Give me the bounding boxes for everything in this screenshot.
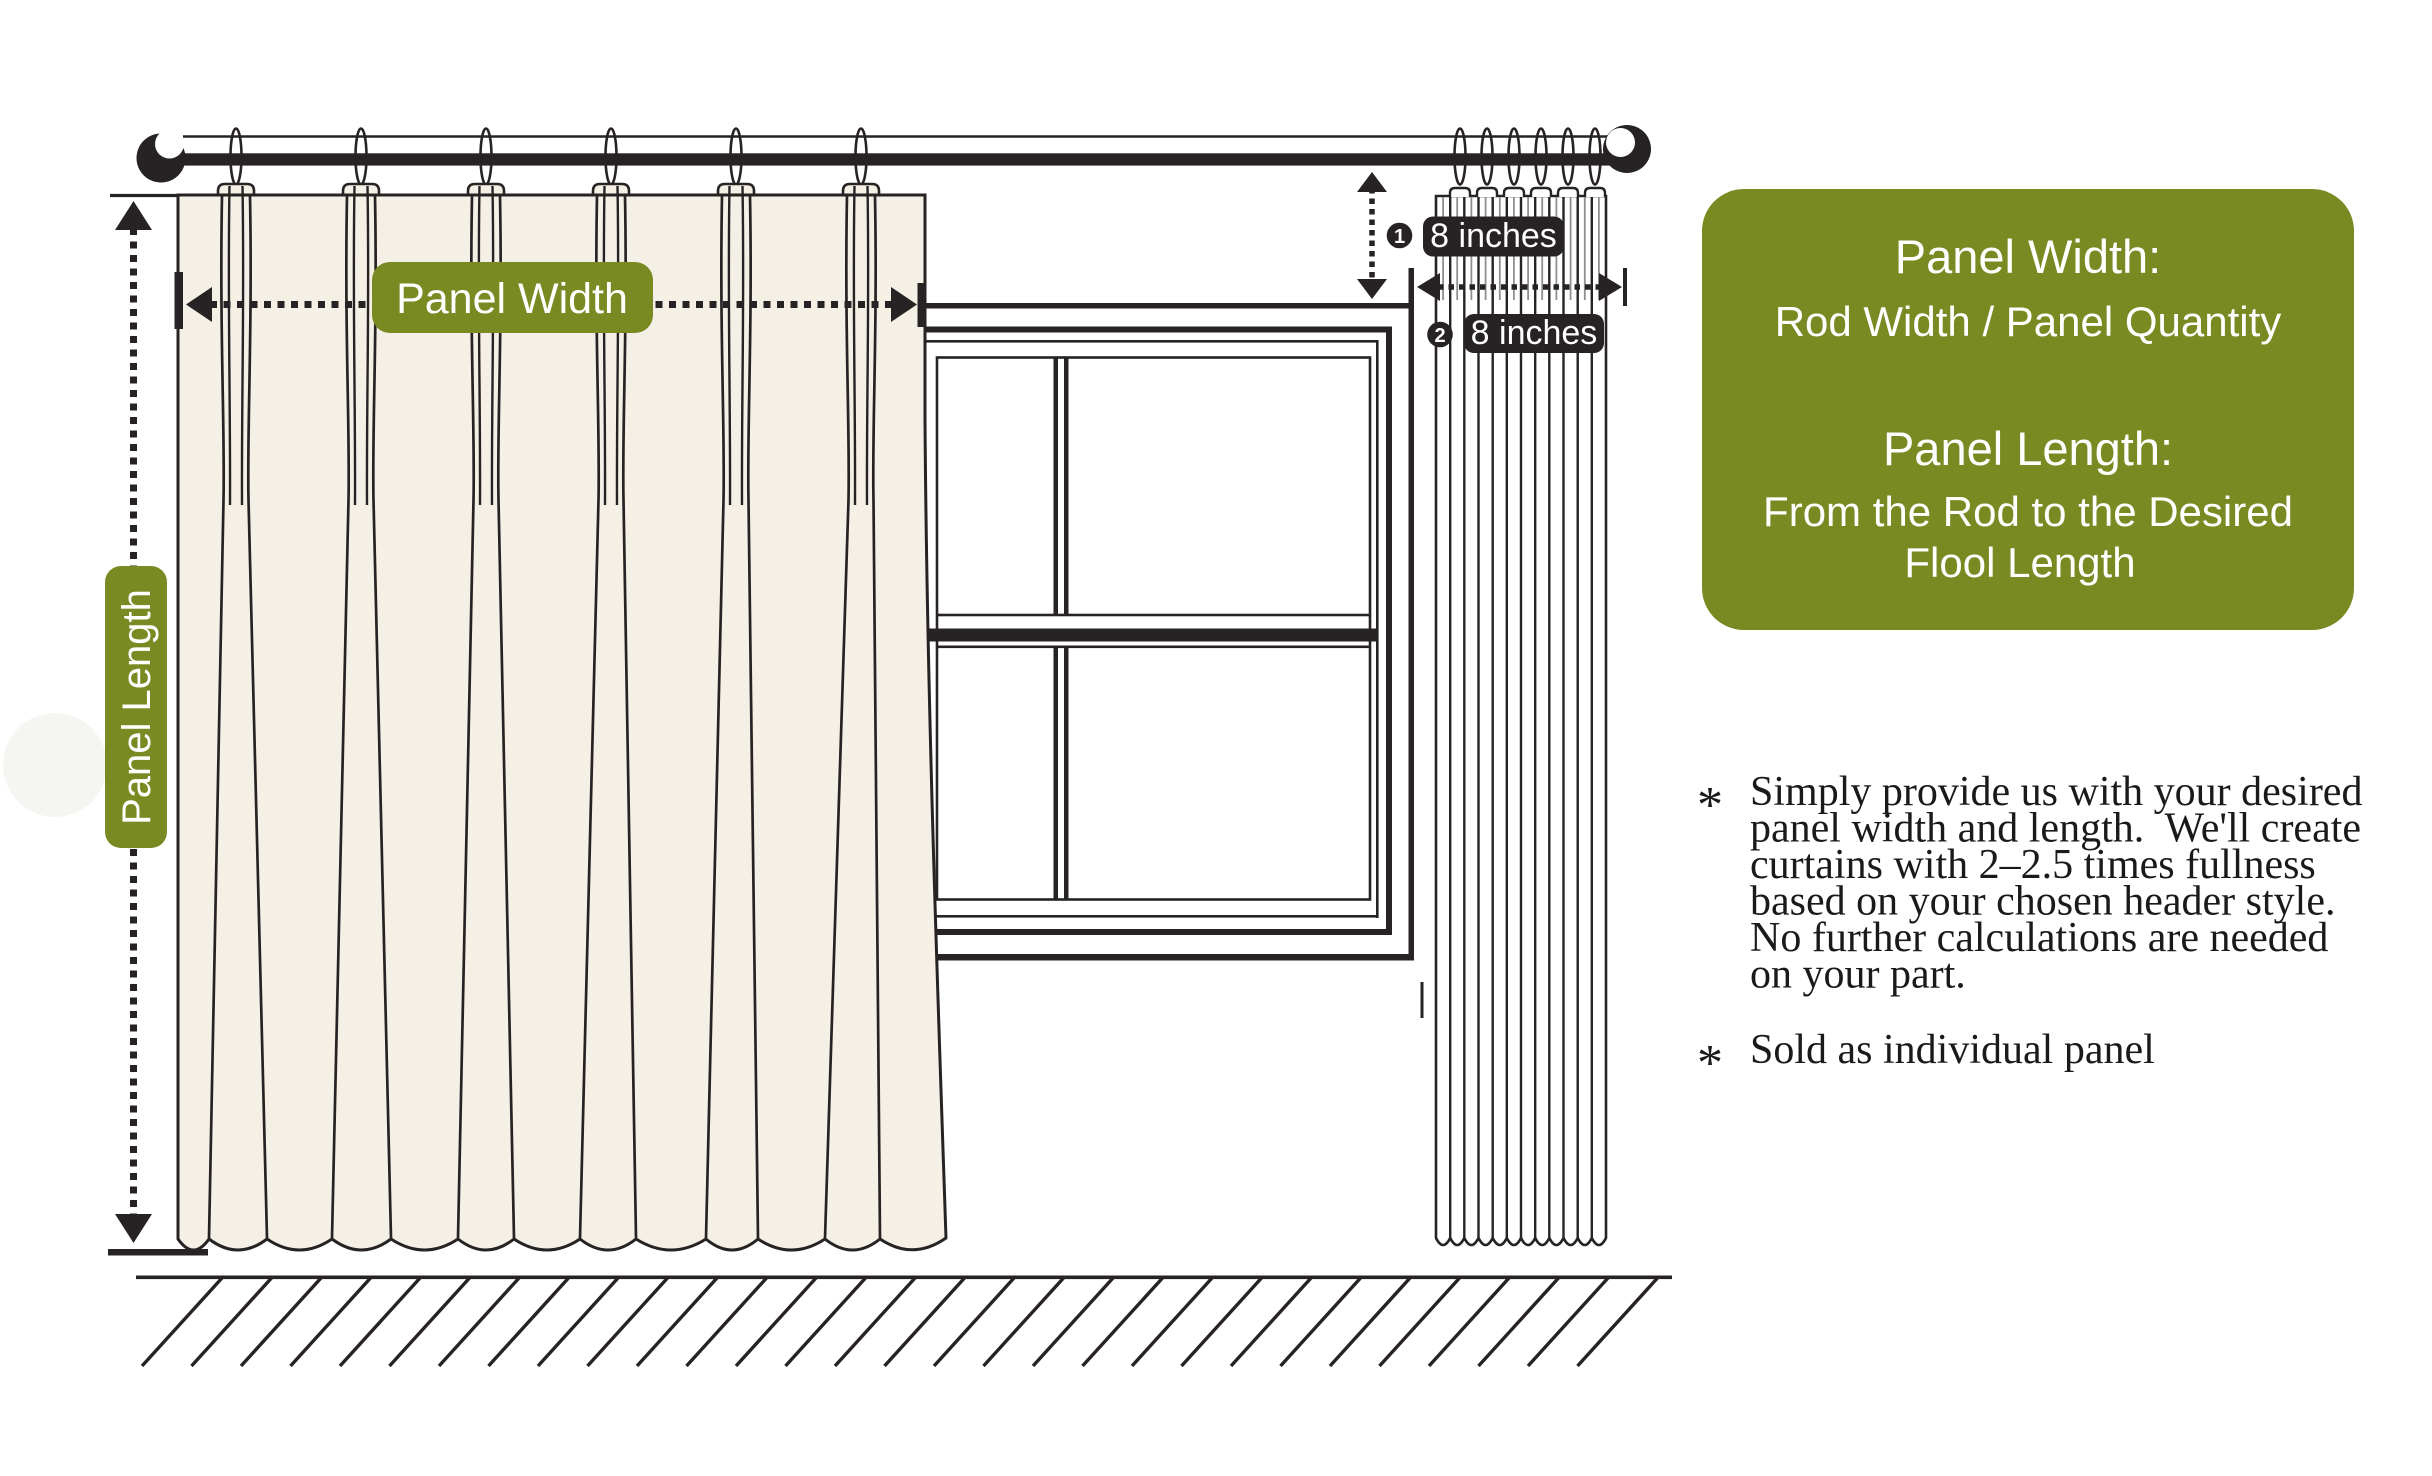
svg-text:8 inches: 8 inches — [1471, 314, 1598, 352]
svg-text:Flool Length: Flool Length — [1904, 539, 2135, 586]
svg-text:Panel Length:: Panel Length: — [1883, 422, 2173, 475]
svg-text:Panel Length: Panel Length — [115, 589, 159, 825]
svg-text:1: 1 — [1394, 226, 1405, 248]
svg-text:*: * — [1697, 1035, 1723, 1092]
svg-text:on your part.: on your part. — [1750, 952, 1966, 998]
svg-text:Rod Width / Panel Quantity: Rod Width / Panel Quantity — [1775, 298, 2282, 345]
svg-text:Sold as individual panel: Sold as individual panel — [1750, 1027, 2155, 1073]
svg-text:*: * — [1697, 777, 1723, 834]
svg-text:8 inches: 8 inches — [1430, 217, 1557, 255]
svg-text:Panel Width: Panel Width — [396, 275, 628, 323]
svg-text:Panel Width:: Panel Width: — [1895, 230, 2161, 283]
svg-text:2: 2 — [1434, 325, 1445, 347]
svg-text:From the Rod to the Desired: From the Rod to the Desired — [1763, 488, 2293, 535]
